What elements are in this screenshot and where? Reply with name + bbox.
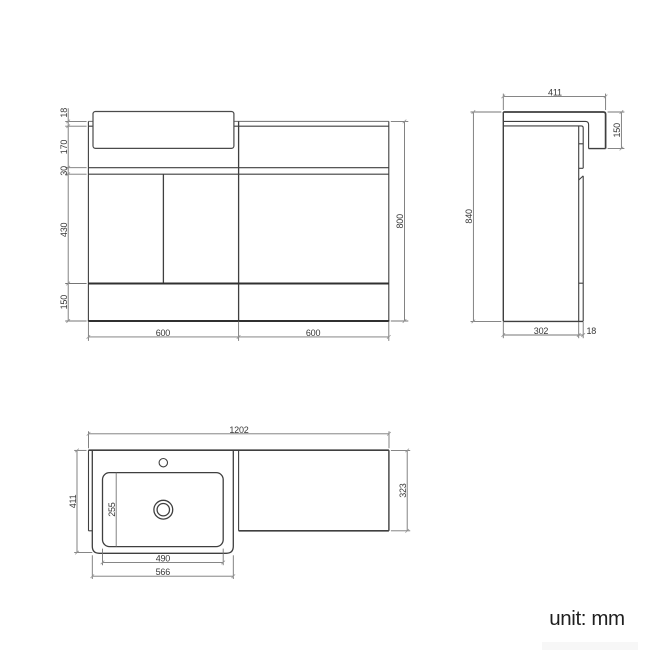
svg-text:1202: 1202 [229, 425, 248, 435]
svg-text:18: 18 [586, 326, 596, 336]
svg-text:490: 490 [156, 553, 171, 563]
svg-text:600: 600 [156, 328, 171, 338]
svg-text:600: 600 [306, 328, 321, 338]
svg-text:150: 150 [612, 123, 622, 138]
svg-text:430: 430 [59, 223, 69, 238]
svg-text:323: 323 [398, 483, 408, 498]
svg-text:302: 302 [534, 326, 549, 336]
svg-text:840: 840 [464, 209, 474, 224]
svg-text:411: 411 [548, 88, 562, 98]
svg-text:170: 170 [59, 140, 69, 155]
svg-text:566: 566 [156, 567, 171, 577]
svg-text:30: 30 [59, 166, 69, 176]
svg-text:255: 255 [107, 502, 117, 517]
svg-text:18: 18 [59, 108, 69, 118]
svg-text:150: 150 [59, 295, 69, 310]
svg-text:800: 800 [395, 214, 405, 229]
svg-text:411: 411 [68, 494, 78, 508]
